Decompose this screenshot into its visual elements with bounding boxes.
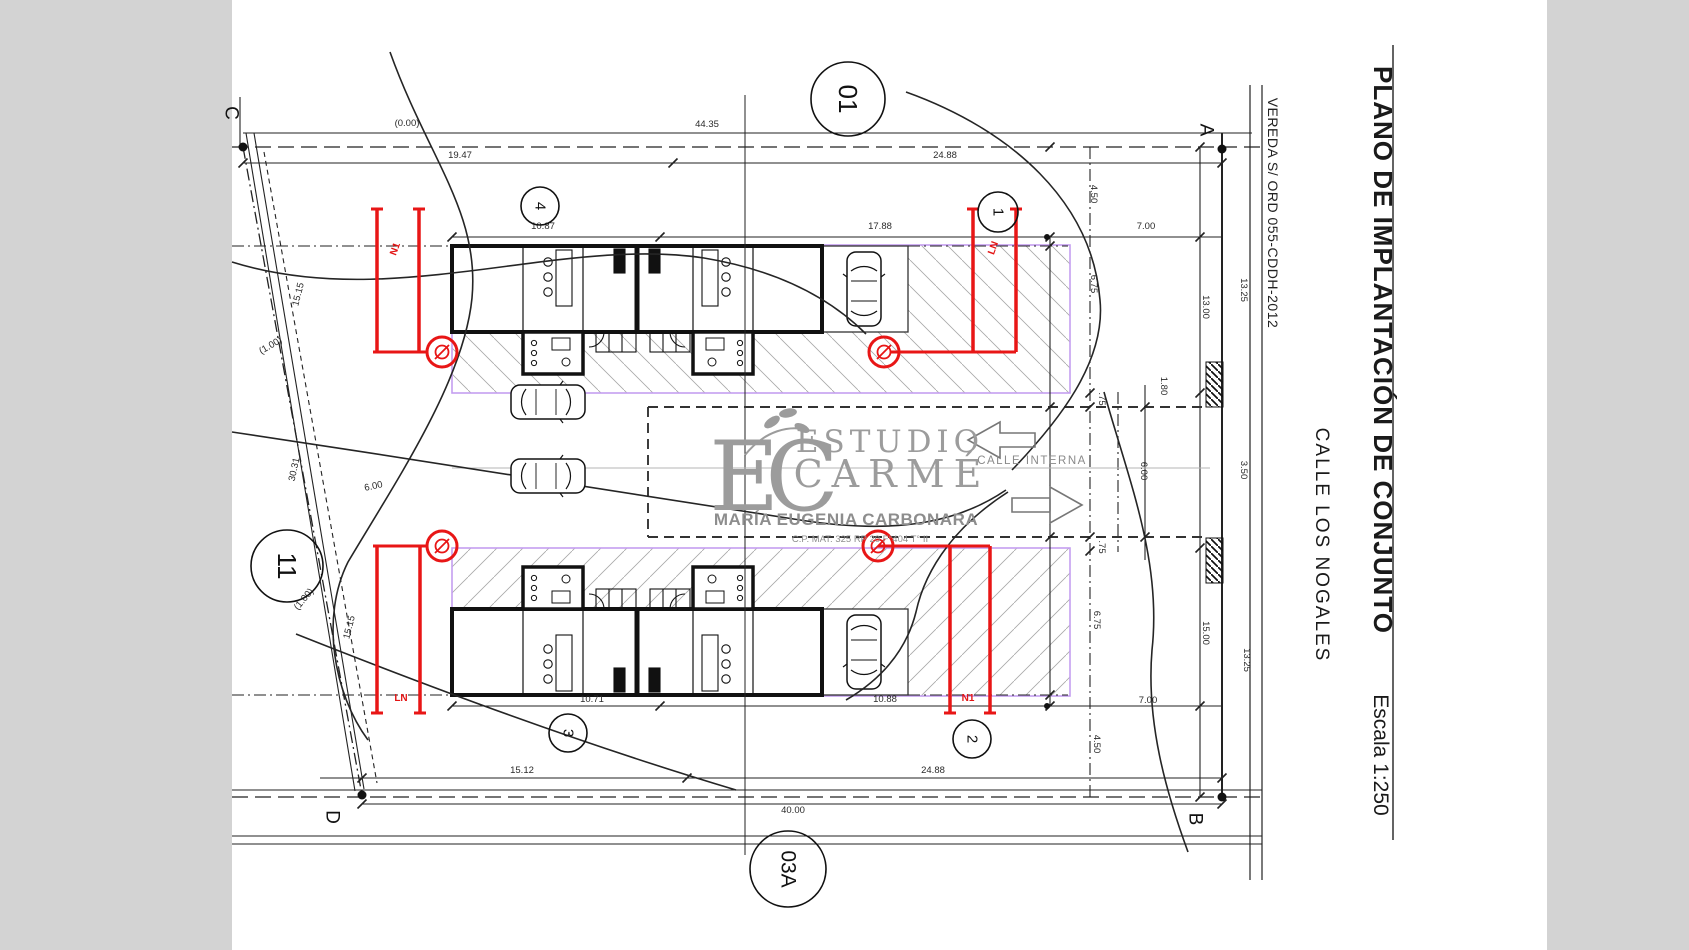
lot-marker-number: 11 (272, 553, 302, 580)
dimension-label: 1.80 (1158, 377, 1169, 396)
dimension-label: 4.50 (1091, 735, 1102, 754)
lot-corner-letter: C (221, 106, 242, 120)
dimension-label: (0.00) (395, 118, 420, 129)
watermark-studio-line2: CARMÉ (794, 452, 991, 496)
plan-scale: Escala 1:250 (1369, 694, 1392, 815)
internal-street-label: CALLE INTERNA (977, 455, 1087, 467)
lot-marker-number: 3 (560, 729, 577, 737)
studio-watermark: EC ESTUDIO CARMÉ MARÍA EUGENIA CARBONARA… (709, 407, 990, 545)
dimension-label: 3.50 (1238, 461, 1249, 480)
parked-car (511, 455, 585, 497)
dimension-label: 6.00 (1138, 462, 1149, 481)
red-survey-label: N1 (962, 693, 975, 704)
dimension-label: 10.88 (873, 694, 897, 705)
lot-marker-number: 4 (532, 202, 549, 210)
lot-corner-letter: A (1196, 124, 1217, 137)
dimension-label: 44.35 (695, 119, 719, 130)
lot-corner-letter: D (322, 810, 343, 824)
dimension-label: 19.47 (448, 150, 472, 161)
dimension-label: 10.87 (531, 221, 555, 232)
dimension-label: 6.75 (1091, 611, 1102, 630)
watermark-registration: C.P. MAT. 325 RP 20 F°404 T° II (792, 534, 928, 545)
parked-car (511, 381, 585, 423)
dimension-label: 7.00 (1139, 695, 1158, 706)
dimension-label: 15.00 (1200, 621, 1211, 645)
lot-marker-number: 2 (964, 735, 981, 743)
dimension-label: 10.71 (580, 694, 604, 705)
left-margin-band (0, 0, 232, 950)
lot-marker-number: 1 (990, 208, 1007, 216)
site-plan-drawing: EC ESTUDIO CARMÉ MARÍA EUGENIA CARBONARA… (0, 0, 1689, 950)
dimension-label: 13.00 (1200, 295, 1211, 319)
street-name-label: CALLE LOS NOGALES (1311, 428, 1332, 663)
lot-corner-letter: B (1185, 813, 1206, 826)
right-margin-band (1547, 0, 1689, 950)
dimension-label: 13.25 (1241, 648, 1252, 672)
top-duplex (452, 245, 1070, 393)
dimension-label: 4.50 (1088, 185, 1099, 204)
bottom-duplex (452, 548, 1070, 696)
dimension-label: 24.88 (921, 765, 945, 776)
watermark-professional-name: MARÍA EUGENIA CARBONARA (714, 510, 978, 529)
dimension-label: 6.75 (1088, 275, 1099, 294)
lot-marker-number: 03A (777, 850, 800, 887)
dimension-label: 15.12 (510, 765, 534, 776)
dimension-label: 7.00 (1137, 221, 1156, 232)
dimension-label: .75 (1096, 540, 1107, 553)
dimension-label: 13.25 (1238, 278, 1249, 302)
lot-marker-number: 01 (833, 85, 863, 114)
dimension-label: 24.88 (933, 150, 957, 161)
dimension-label: .75 (1096, 392, 1107, 405)
dimension-label: 17.88 (868, 221, 892, 232)
red-survey-label: LN (394, 693, 407, 704)
sidewalk-ordinance-note: VEREDA S/ ORD 055-CDDH-2012 (1265, 98, 1281, 329)
dimension-label: 40.00 (781, 805, 805, 816)
